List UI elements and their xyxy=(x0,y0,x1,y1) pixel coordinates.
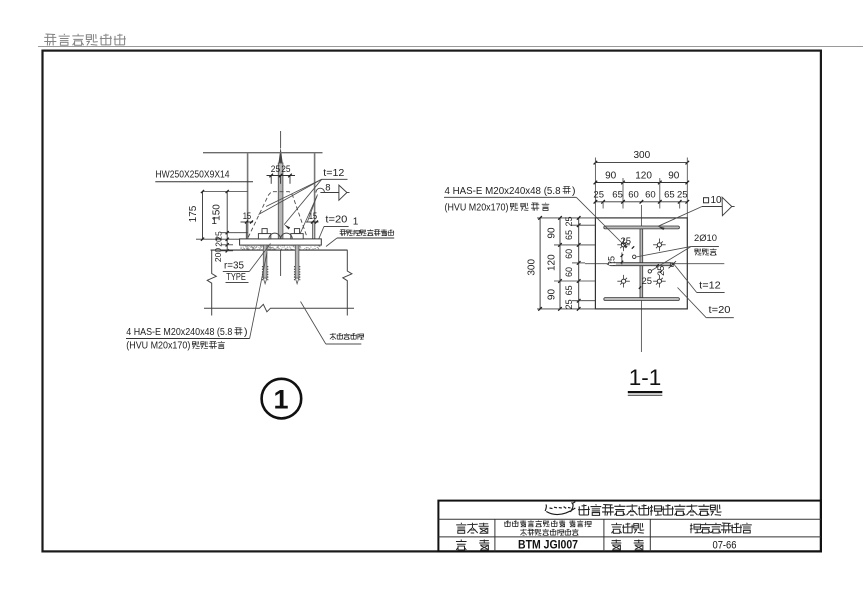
svg-text:65: 65 xyxy=(564,285,574,295)
svg-text:60: 60 xyxy=(645,190,656,201)
svg-text:60: 60 xyxy=(564,267,574,277)
svg-text:25: 25 xyxy=(593,190,604,201)
svg-text:65: 65 xyxy=(664,190,675,201)
svg-text:): ) xyxy=(572,185,576,197)
svg-text:(HVU M20x170): (HVU M20x170) xyxy=(445,203,509,214)
svg-text:175: 175 xyxy=(188,205,199,222)
svg-text:60: 60 xyxy=(628,190,639,201)
svg-text:25: 25 xyxy=(621,236,632,246)
svg-text:t=12: t=12 xyxy=(699,281,721,292)
svg-text:300: 300 xyxy=(633,150,650,161)
svg-text:t=20: t=20 xyxy=(709,305,731,316)
svg-text:90: 90 xyxy=(605,171,617,182)
svg-text:BTM JGI007: BTM JGI007 xyxy=(518,539,578,551)
svg-text:HW250X250X9X14: HW250X250X9X14 xyxy=(156,169,230,181)
svg-text:8: 8 xyxy=(325,183,330,194)
svg-text:120: 120 xyxy=(635,171,652,182)
svg-text:120: 120 xyxy=(546,254,557,271)
svg-text:65: 65 xyxy=(564,230,574,240)
svg-text:10: 10 xyxy=(711,195,723,206)
svg-text:2Ø10: 2Ø10 xyxy=(694,233,717,244)
svg-text:(HVU M20x170): (HVU M20x170) xyxy=(126,341,190,352)
svg-text:25: 25 xyxy=(642,276,653,286)
svg-text:90: 90 xyxy=(546,227,557,239)
svg-text:1: 1 xyxy=(353,217,359,228)
svg-text:07-66: 07-66 xyxy=(713,539,737,551)
svg-text:60: 60 xyxy=(564,249,574,259)
svg-text:90: 90 xyxy=(546,289,557,301)
svg-text:20: 20 xyxy=(214,237,224,247)
svg-text:1: 1 xyxy=(211,216,217,227)
svg-text:90: 90 xyxy=(668,171,680,182)
svg-text:t=20: t=20 xyxy=(325,214,347,225)
svg-text:r=35: r=35 xyxy=(224,260,244,271)
svg-text:25: 25 xyxy=(677,190,688,201)
svg-text:4 HAS-E M20x240x48 (5.8: 4 HAS-E M20x240x48 (5.8 xyxy=(445,185,561,197)
svg-text:25: 25 xyxy=(281,164,290,175)
svg-text:15: 15 xyxy=(243,211,252,222)
svg-text:1: 1 xyxy=(273,384,288,414)
svg-text:): ) xyxy=(244,326,248,338)
svg-text:65: 65 xyxy=(612,190,623,201)
svg-text:4 HAS-E M20x240x48 (5.8: 4 HAS-E M20x240x48 (5.8 xyxy=(126,326,232,338)
svg-text:TYPE: TYPE xyxy=(226,272,246,283)
svg-text:25: 25 xyxy=(271,164,280,175)
svg-text:300: 300 xyxy=(527,259,538,276)
svg-text:1-1: 1-1 xyxy=(629,365,662,390)
svg-text:t=12: t=12 xyxy=(323,168,344,179)
